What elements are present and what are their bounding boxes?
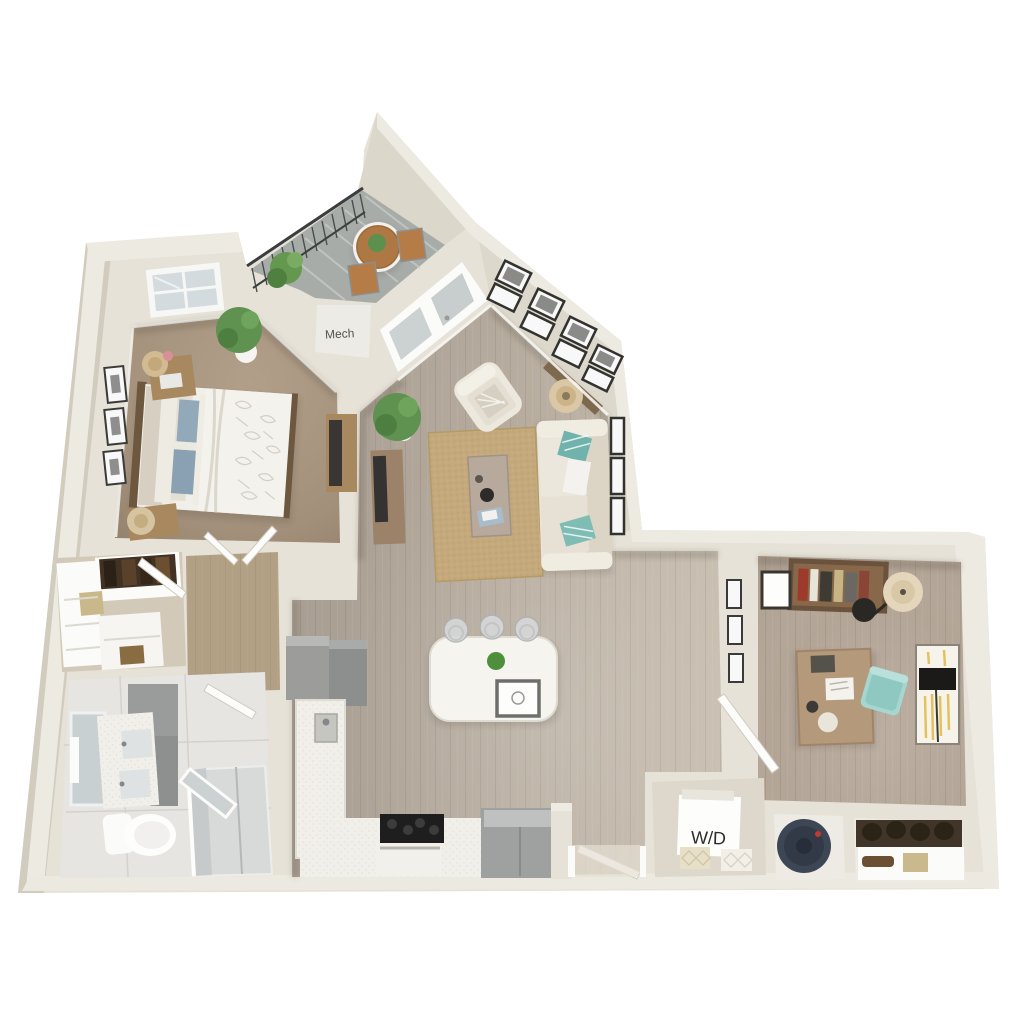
svg-text:Mech: Mech [325, 326, 355, 342]
svg-text:W/D: W/D [691, 827, 727, 848]
